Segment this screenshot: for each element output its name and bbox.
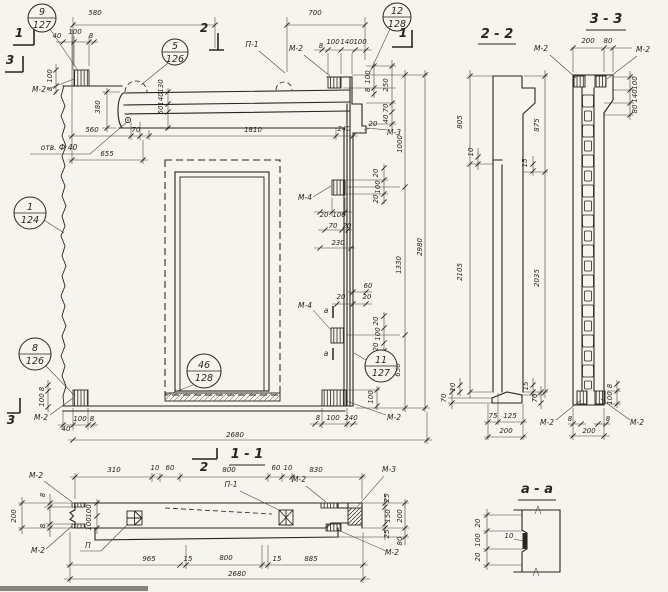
callout-number: 12 <box>391 6 403 17</box>
dim-label: 200 <box>396 509 404 523</box>
callout-number: 46 <box>198 360 210 371</box>
dim-label: 200 <box>10 509 18 523</box>
dim-label: 655 <box>100 150 114 158</box>
dim-label: 80 <box>396 536 404 545</box>
dim-label: 25 <box>383 493 391 502</box>
dim-label: 10 <box>151 464 160 472</box>
opening-hidden-outline <box>165 160 280 395</box>
embed-plate-m2 <box>595 76 606 87</box>
callout-number: 11 <box>375 355 387 366</box>
dim-label: 150 <box>384 509 392 523</box>
part-label: М-2 <box>292 475 306 484</box>
dim-label: 40 <box>382 114 390 123</box>
dim-label: 200 <box>499 427 513 435</box>
callout-series: 127 <box>372 368 390 379</box>
embed-plate-m2 <box>72 524 85 528</box>
callout-bubble-1-124: 1124 <box>14 197 64 233</box>
dim-label: 1330 <box>395 256 403 274</box>
dim-label: 25 <box>383 529 391 538</box>
panel-bottom-edge <box>63 406 353 411</box>
dim-label: 40 <box>53 32 62 40</box>
opening-frame-outer <box>175 172 269 391</box>
dim-label: 875 <box>533 118 541 132</box>
dim-label: 100 <box>46 69 54 83</box>
section-mark-label: 1 <box>399 26 407 40</box>
panel-left-rough-edge <box>61 86 66 406</box>
part-label: М-2 <box>29 471 43 480</box>
part-label: П-1 <box>245 40 258 49</box>
callout-number: 1 <box>27 202 33 213</box>
dim-label: 1000 <box>396 135 404 153</box>
dim-label: 560 <box>85 126 99 134</box>
section-mark-3: 3 <box>5 53 23 72</box>
dim-label: 8 <box>319 42 324 50</box>
dim-label: 2680 <box>226 431 244 439</box>
dim-label: 8 <box>568 415 573 423</box>
callout-leader <box>44 220 64 233</box>
part-label: М-4 <box>298 193 312 202</box>
dim-label: 15 <box>273 555 282 563</box>
section-2-2-sill <box>492 392 522 403</box>
dim-label: 80 <box>631 104 639 113</box>
hollow-cores <box>583 95 594 389</box>
dim-label: 8 <box>90 415 95 423</box>
section-mark-1: 1 <box>13 26 34 45</box>
section-mark-label: 2 <box>200 460 208 474</box>
embed-plate-m2-top-left <box>74 70 89 86</box>
dim-label: 20 <box>372 316 380 325</box>
section-mark-line <box>7 398 20 413</box>
section-2-2-profile <box>493 76 535 392</box>
dim-label: 8 <box>38 386 46 391</box>
dim-label: 200 <box>582 427 596 435</box>
scan-artifact <box>0 586 148 591</box>
callout-series: 126 <box>166 54 184 65</box>
dim-label: 8 <box>39 523 47 528</box>
dim-label: 20 <box>372 194 380 203</box>
dim-label: 140 <box>340 38 354 46</box>
section-mark-2: 2 <box>192 448 217 474</box>
dim-label: 830 <box>309 466 323 474</box>
section-2-2 <box>448 44 548 440</box>
callout-leader <box>354 353 366 360</box>
dim-label: 70 <box>531 393 539 402</box>
dim-label: 310 <box>107 466 121 474</box>
dim-label: 100 <box>474 533 482 547</box>
dim-label: 2105 <box>456 263 464 281</box>
dim-label: 70 <box>329 222 338 230</box>
dim-label: 70 <box>132 126 141 134</box>
dim-label: 10 <box>467 147 475 156</box>
dim-label: 10 <box>449 382 457 391</box>
part-label: М-2 <box>630 418 644 427</box>
dim-label: 20 <box>363 293 372 301</box>
dim-label: 20 <box>372 168 380 177</box>
dim-label: 1810 <box>244 126 262 134</box>
embed-plate-m2 <box>321 503 338 508</box>
callout-bubble-11-127: 11127 <box>354 350 397 382</box>
dim-label: 80 <box>604 37 613 45</box>
dim-label: 40 <box>62 425 71 433</box>
dim-label: 2035 <box>533 269 541 287</box>
dim-label: 125 <box>503 412 517 420</box>
dim-label: 100 <box>85 504 93 518</box>
view-title: 2 - 2 <box>481 27 514 42</box>
callout-leader <box>369 29 390 74</box>
section-1-1 <box>18 465 409 583</box>
section-mark-2: 2 <box>200 21 224 50</box>
dim-label: 100 <box>85 517 93 531</box>
dim-label: 140 <box>157 92 165 106</box>
dim-label: 15 <box>522 381 530 390</box>
section-mark-label: 1 <box>15 26 23 40</box>
dim-label: 60 <box>272 464 281 472</box>
dim-label: 100 <box>38 393 46 407</box>
section-mark-line <box>209 33 224 50</box>
part-label: М-2 <box>31 546 45 555</box>
embed-p-item <box>279 510 293 525</box>
dim-label: 75 <box>489 412 498 420</box>
dim-label: 100 <box>73 415 87 423</box>
dim-label: 2680 <box>228 570 246 578</box>
section-mark-label: 2 <box>200 21 208 35</box>
dim-label: 8 <box>606 415 611 423</box>
callout-leader <box>46 366 74 395</box>
callout-series: 127 <box>33 20 51 31</box>
embed-p-item <box>127 511 142 525</box>
detail-a-a-outline <box>514 510 560 572</box>
part-label: а <box>324 306 329 315</box>
part-label: М-2 <box>636 45 650 54</box>
dim-label: 8 <box>46 86 54 91</box>
dim-label: 10 <box>284 464 293 472</box>
leader-lines <box>514 539 523 541</box>
part-label: М-2 <box>387 413 401 422</box>
embed-plate-m2 <box>72 503 85 507</box>
dim-label: 20 <box>474 552 482 561</box>
ledge-outline <box>118 90 350 128</box>
dim-label: 805 <box>456 115 464 129</box>
section-mark-3: 3 <box>7 398 20 427</box>
dim-label: 100 <box>353 38 367 46</box>
panel-working-drawing: 5807004010088100140100П-1М-2М-2100813014… <box>0 0 668 592</box>
dim-label: 100 <box>332 211 346 219</box>
part-label: М-2 <box>540 418 554 427</box>
dim-label: 800 <box>222 466 236 474</box>
dim-label: 60 <box>166 464 175 472</box>
embed-p1-arc <box>276 82 292 90</box>
dim-label: 380 <box>94 100 102 114</box>
part-label: П-1 <box>224 480 237 489</box>
section-3-3-profile <box>573 75 613 405</box>
part-label: а <box>324 349 329 358</box>
callout-number: 9 <box>39 7 45 18</box>
detail-plate <box>523 533 528 549</box>
dim-label: 60 <box>364 282 373 290</box>
dim-label: 50 <box>157 105 165 114</box>
dim-label: 965 <box>142 555 156 563</box>
callout-number: 5 <box>172 41 178 52</box>
embed-plate-m4-lower <box>331 328 344 343</box>
embed-plate-m2-bottom-left <box>73 390 88 406</box>
callout-series: 128 <box>195 373 213 384</box>
embed-plate-m2 <box>326 524 341 531</box>
dim-label: 250 <box>382 78 390 92</box>
dim-label: 885 <box>304 555 318 563</box>
dim-label: 20 <box>369 120 378 128</box>
embed-plate-m4-upper <box>332 180 345 195</box>
dim-label: 15 <box>521 158 529 167</box>
view-title: 1 - 1 <box>231 447 264 462</box>
detail-a-a <box>483 500 560 576</box>
dim-label: 70 <box>440 393 448 402</box>
dim-label: 8 <box>89 32 94 40</box>
dim-label: 10 <box>505 532 514 540</box>
embed-plate-m2-top-right <box>328 77 341 88</box>
dim-label: 200 <box>581 37 595 45</box>
view-title: 3 - 3 <box>590 12 623 27</box>
section-mark-line <box>192 448 217 459</box>
callout-number: 8 <box>32 343 38 354</box>
dim-label: 100 <box>326 414 340 422</box>
dim-label: 240 <box>337 125 351 133</box>
dim-label: 2980 <box>416 238 424 256</box>
hidden-opening-edge <box>165 508 272 514</box>
dim-label: 20 <box>474 518 482 527</box>
callout-series: 124 <box>21 215 39 226</box>
embed-plate-m3 <box>348 508 362 525</box>
embed-plate-m2-bottom-right <box>322 390 346 406</box>
section-mark-label: 3 <box>7 413 15 427</box>
dim-label: 100 <box>374 180 382 194</box>
dim-label: 800 <box>219 554 233 562</box>
hole-40-center <box>127 119 129 121</box>
dim-label: 100 <box>326 38 340 46</box>
section-mark-label: 3 <box>6 53 14 67</box>
dim-label: 8 <box>606 383 614 388</box>
part-label: М-3 <box>382 465 396 474</box>
callout-bubble-5-126: 5126 <box>141 39 188 85</box>
dim-label: 100 <box>606 391 614 405</box>
part-label: М-2 <box>34 413 48 422</box>
dim-label: 20 <box>337 293 346 301</box>
dim-label: 140 <box>631 89 639 103</box>
dim-label: 15 <box>184 555 193 563</box>
dim-label: 700 <box>308 9 322 17</box>
dim-label: 240 <box>344 414 358 422</box>
drawing-sheet: 5807004010088100140100П-1М-2М-2100813014… <box>0 0 668 592</box>
dim-label: 230 <box>331 239 345 247</box>
dim-label: 20 <box>343 222 352 230</box>
section-3-3 <box>550 30 637 440</box>
part-label: М-2 <box>534 44 548 53</box>
dim-label: 8 <box>316 414 321 422</box>
dim-label: 100 <box>364 70 372 84</box>
dim-label: 100 <box>367 390 375 404</box>
dim-label: 70 <box>382 103 390 112</box>
part-label: М-2 <box>289 44 303 53</box>
dim-label: 580 <box>88 9 102 17</box>
dim-label: 130 <box>157 79 165 93</box>
dim-label: 8 <box>364 87 372 92</box>
opening-sill-band <box>165 393 280 401</box>
generated-annotations: 5807004010088100140100П-1М-2М-2100813014… <box>10 9 650 578</box>
dim-label: 100 <box>631 76 639 90</box>
part-label: отв. Ф 40 <box>41 143 78 152</box>
section-1-1-outline <box>70 503 362 540</box>
part-label: М-2 <box>32 85 46 94</box>
dim-label: 100 <box>68 28 82 36</box>
generated-callouts: 9127512612128112481264612811127 <box>14 3 411 395</box>
embed-plate-m2 <box>595 391 605 404</box>
dim-label: 20 <box>320 211 329 219</box>
dim-label: 8 <box>39 492 47 497</box>
callout-series: 126 <box>26 356 44 367</box>
part-label: М-2 <box>385 548 399 557</box>
part-label: М-4 <box>298 301 312 310</box>
break-marks <box>533 506 541 576</box>
part-label: П <box>85 541 91 550</box>
view-title: а - а <box>521 482 553 497</box>
dim-label: 100 <box>374 327 382 341</box>
